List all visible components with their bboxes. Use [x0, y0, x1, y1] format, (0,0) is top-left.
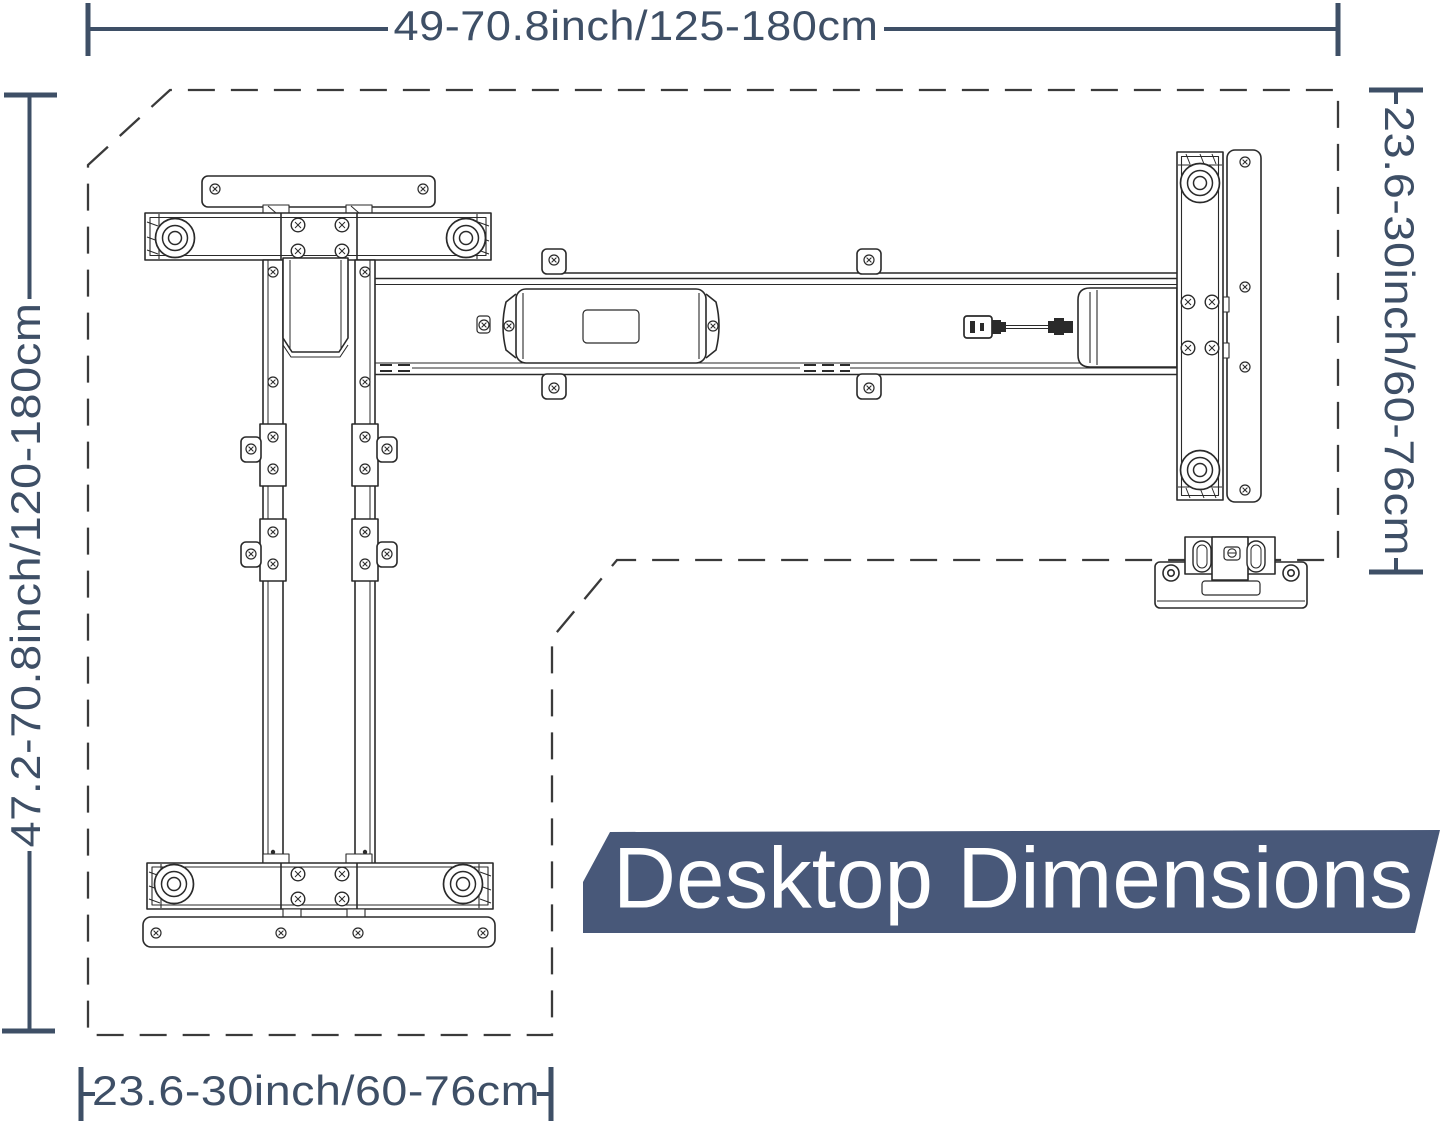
screw-icon [1181, 341, 1195, 355]
screw-icon [268, 559, 278, 569]
dimension-bottom-label: 23.6-30inch/60-76cm [92, 1067, 540, 1114]
dimension-top-label: 49-70.8inch/125-180cm [394, 2, 879, 49]
screw-icon [291, 244, 305, 258]
plug-icon [970, 321, 975, 333]
left-leg-column [241, 258, 397, 864]
screw-icon [291, 218, 305, 232]
title-banner: Desktop Dimensions [583, 830, 1440, 933]
screw-icon [268, 432, 278, 442]
dimension-right-label: 23.6-30inch/60-76cm [1376, 106, 1423, 556]
screw-icon [1240, 282, 1250, 292]
title-banner-label: Desktop Dimensions [613, 831, 1413, 927]
screw-icon [479, 320, 489, 330]
screw-icon [1205, 341, 1219, 355]
screw-icon [276, 928, 286, 938]
desk-dimensions-diagram-page: 49-70.8inch/125-180cm 47.2-70.8inch/120-… [0, 0, 1445, 1123]
screw-icon [268, 464, 278, 474]
screw-icon [1181, 295, 1195, 309]
leveling-foot [444, 865, 483, 904]
desk-frame-top-view-diagram: 49-70.8inch/125-180cm 47.2-70.8inch/120-… [0, 0, 1445, 1123]
screw-icon [335, 218, 349, 232]
screw-icon [360, 559, 370, 569]
screw-icon [864, 255, 874, 265]
desk-frame [143, 150, 1307, 947]
screw-icon [335, 867, 349, 881]
leveling-foot [156, 219, 195, 258]
screw-icon [335, 244, 349, 258]
screw-icon [291, 892, 305, 906]
screw-icon [353, 928, 363, 938]
screw-icon [864, 383, 874, 393]
keypad-controller [1155, 537, 1307, 608]
front-left-leg [143, 854, 495, 947]
screw-icon [210, 184, 220, 194]
rear-left-leg [145, 176, 491, 260]
screw-icon [1240, 485, 1250, 495]
right-leg [1177, 150, 1261, 502]
screw-icon [268, 377, 278, 387]
screw-icon [268, 527, 278, 537]
screw-icon [360, 377, 370, 387]
screw-icon [360, 527, 370, 537]
screw-icon [360, 464, 370, 474]
leveling-foot [447, 219, 486, 258]
screw-icon [1205, 295, 1219, 309]
screw-icon [478, 928, 488, 938]
lifting-motor [1078, 288, 1177, 367]
control-box [503, 289, 719, 363]
screw-icon [268, 267, 278, 277]
screw-icon [549, 255, 559, 265]
screw-icon [708, 321, 718, 331]
screw-icon [246, 549, 256, 559]
screw-icon [382, 549, 392, 559]
screw-icon [1240, 362, 1250, 372]
screw-icon [360, 267, 370, 277]
dimension-left-label: 47.2-70.8inch/120-180cm [2, 303, 49, 848]
screw-icon [246, 444, 256, 454]
screw-icon [1240, 157, 1250, 167]
leveling-foot [1181, 451, 1220, 490]
screw-icon [504, 321, 514, 331]
screw-icon [335, 892, 349, 906]
screw-icon [549, 383, 559, 393]
screw-icon [291, 867, 305, 881]
leveling-foot [155, 865, 194, 904]
power-cable [964, 316, 1073, 338]
screw-icon [151, 928, 161, 938]
screw-icon [360, 432, 370, 442]
screw-icon [382, 444, 392, 454]
screw-icon [418, 184, 428, 194]
leveling-foot [1181, 164, 1220, 203]
